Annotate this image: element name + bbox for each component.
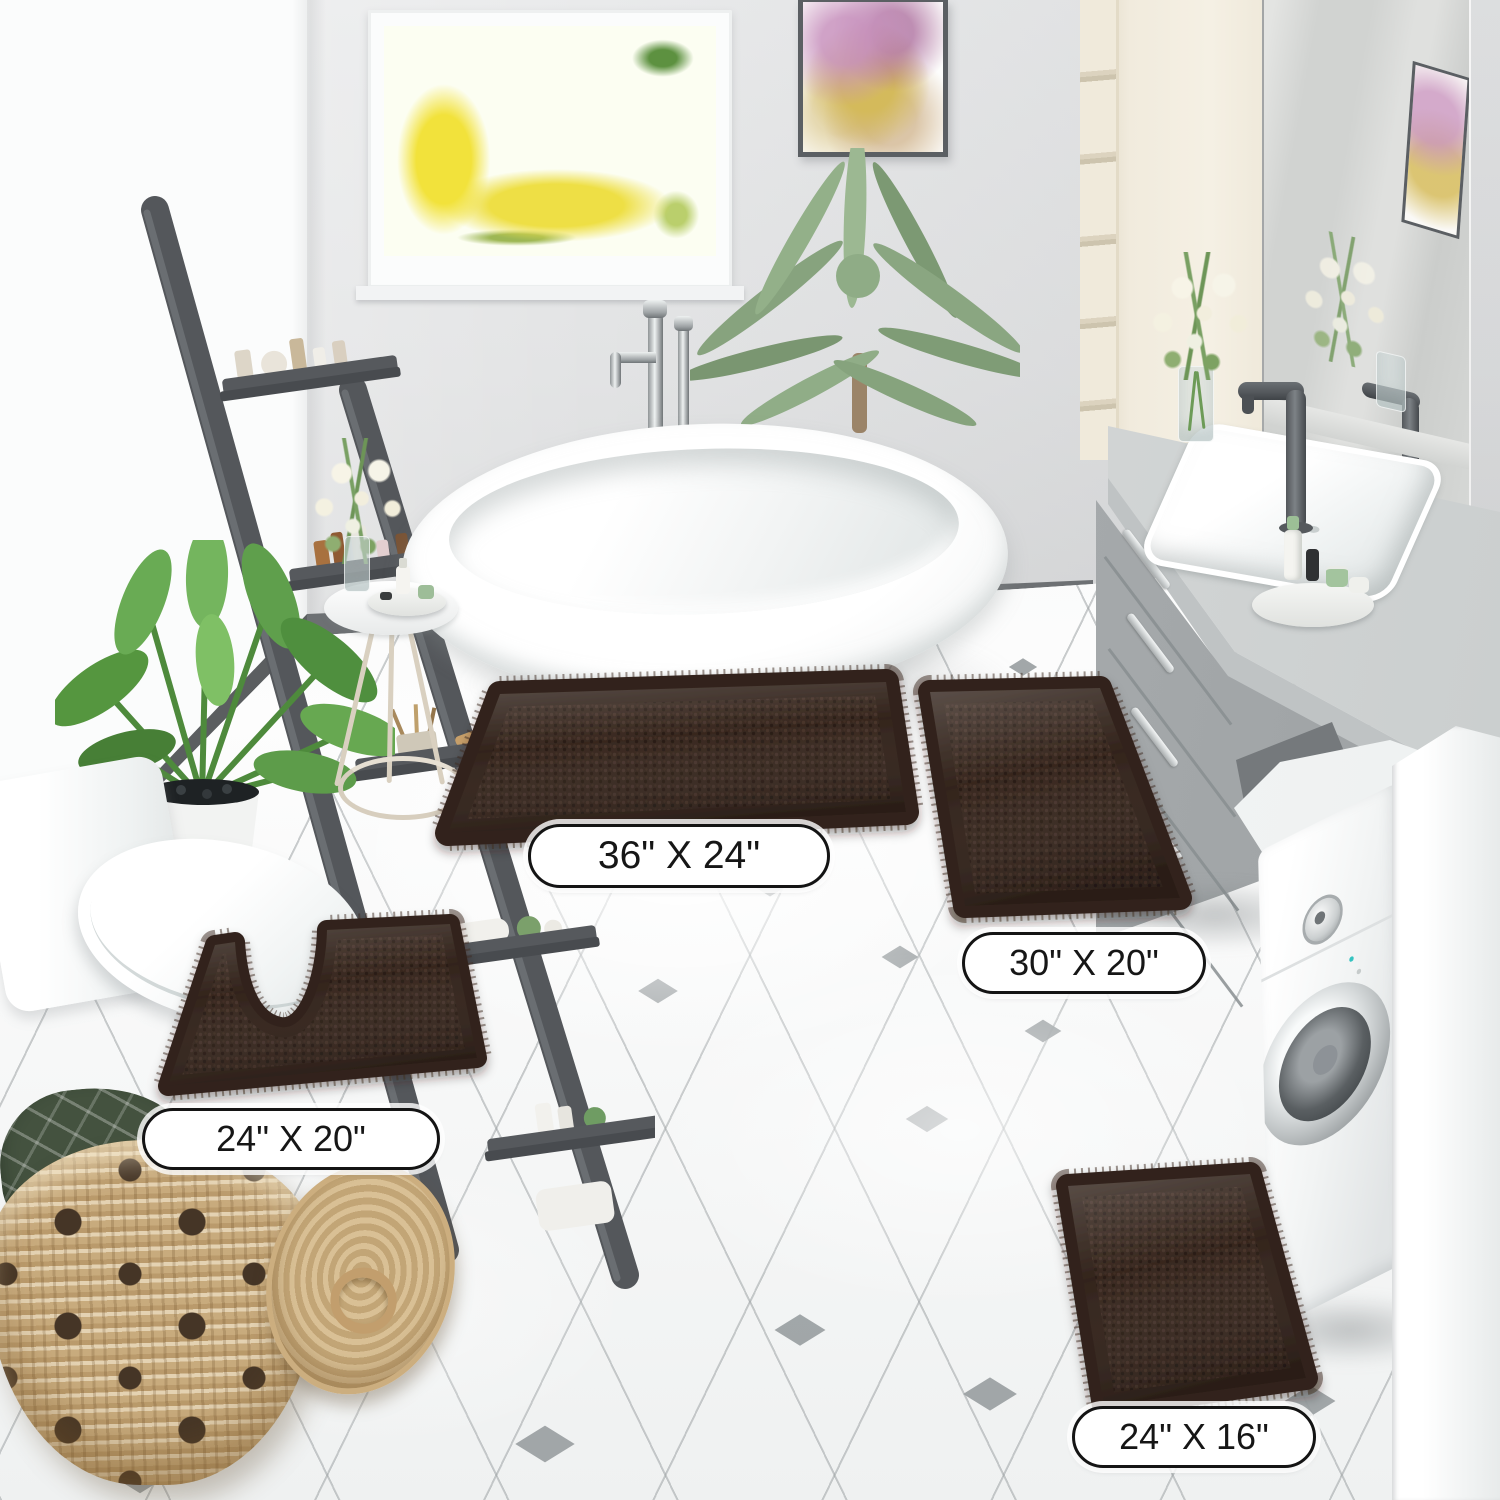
rug-30x20 [930,688,1180,906]
size-label-text: 24" X 20" [216,1118,366,1160]
size-label-24x16: 24" X 16" [1072,1406,1316,1468]
size-label-30x20: 30" X 20" [962,932,1206,994]
size-label-24x20: 24" X 20" [142,1108,440,1170]
size-label-text: 36" X 24" [598,834,760,878]
rug-24x16 [1068,1174,1306,1406]
rug-24x20-contour [168,924,477,1086]
bath-rug-set [0,0,1500,1500]
size-label-text: 30" X 20" [1009,942,1159,984]
size-label-text: 24" X 16" [1119,1416,1269,1458]
bathroom-product-scene: 36" X 24" 30" X 20" 24" X 20" 24" X 16" [0,0,1500,1500]
size-label-36x24: 36" X 24" [528,824,830,888]
rug-36x24 [448,682,906,833]
